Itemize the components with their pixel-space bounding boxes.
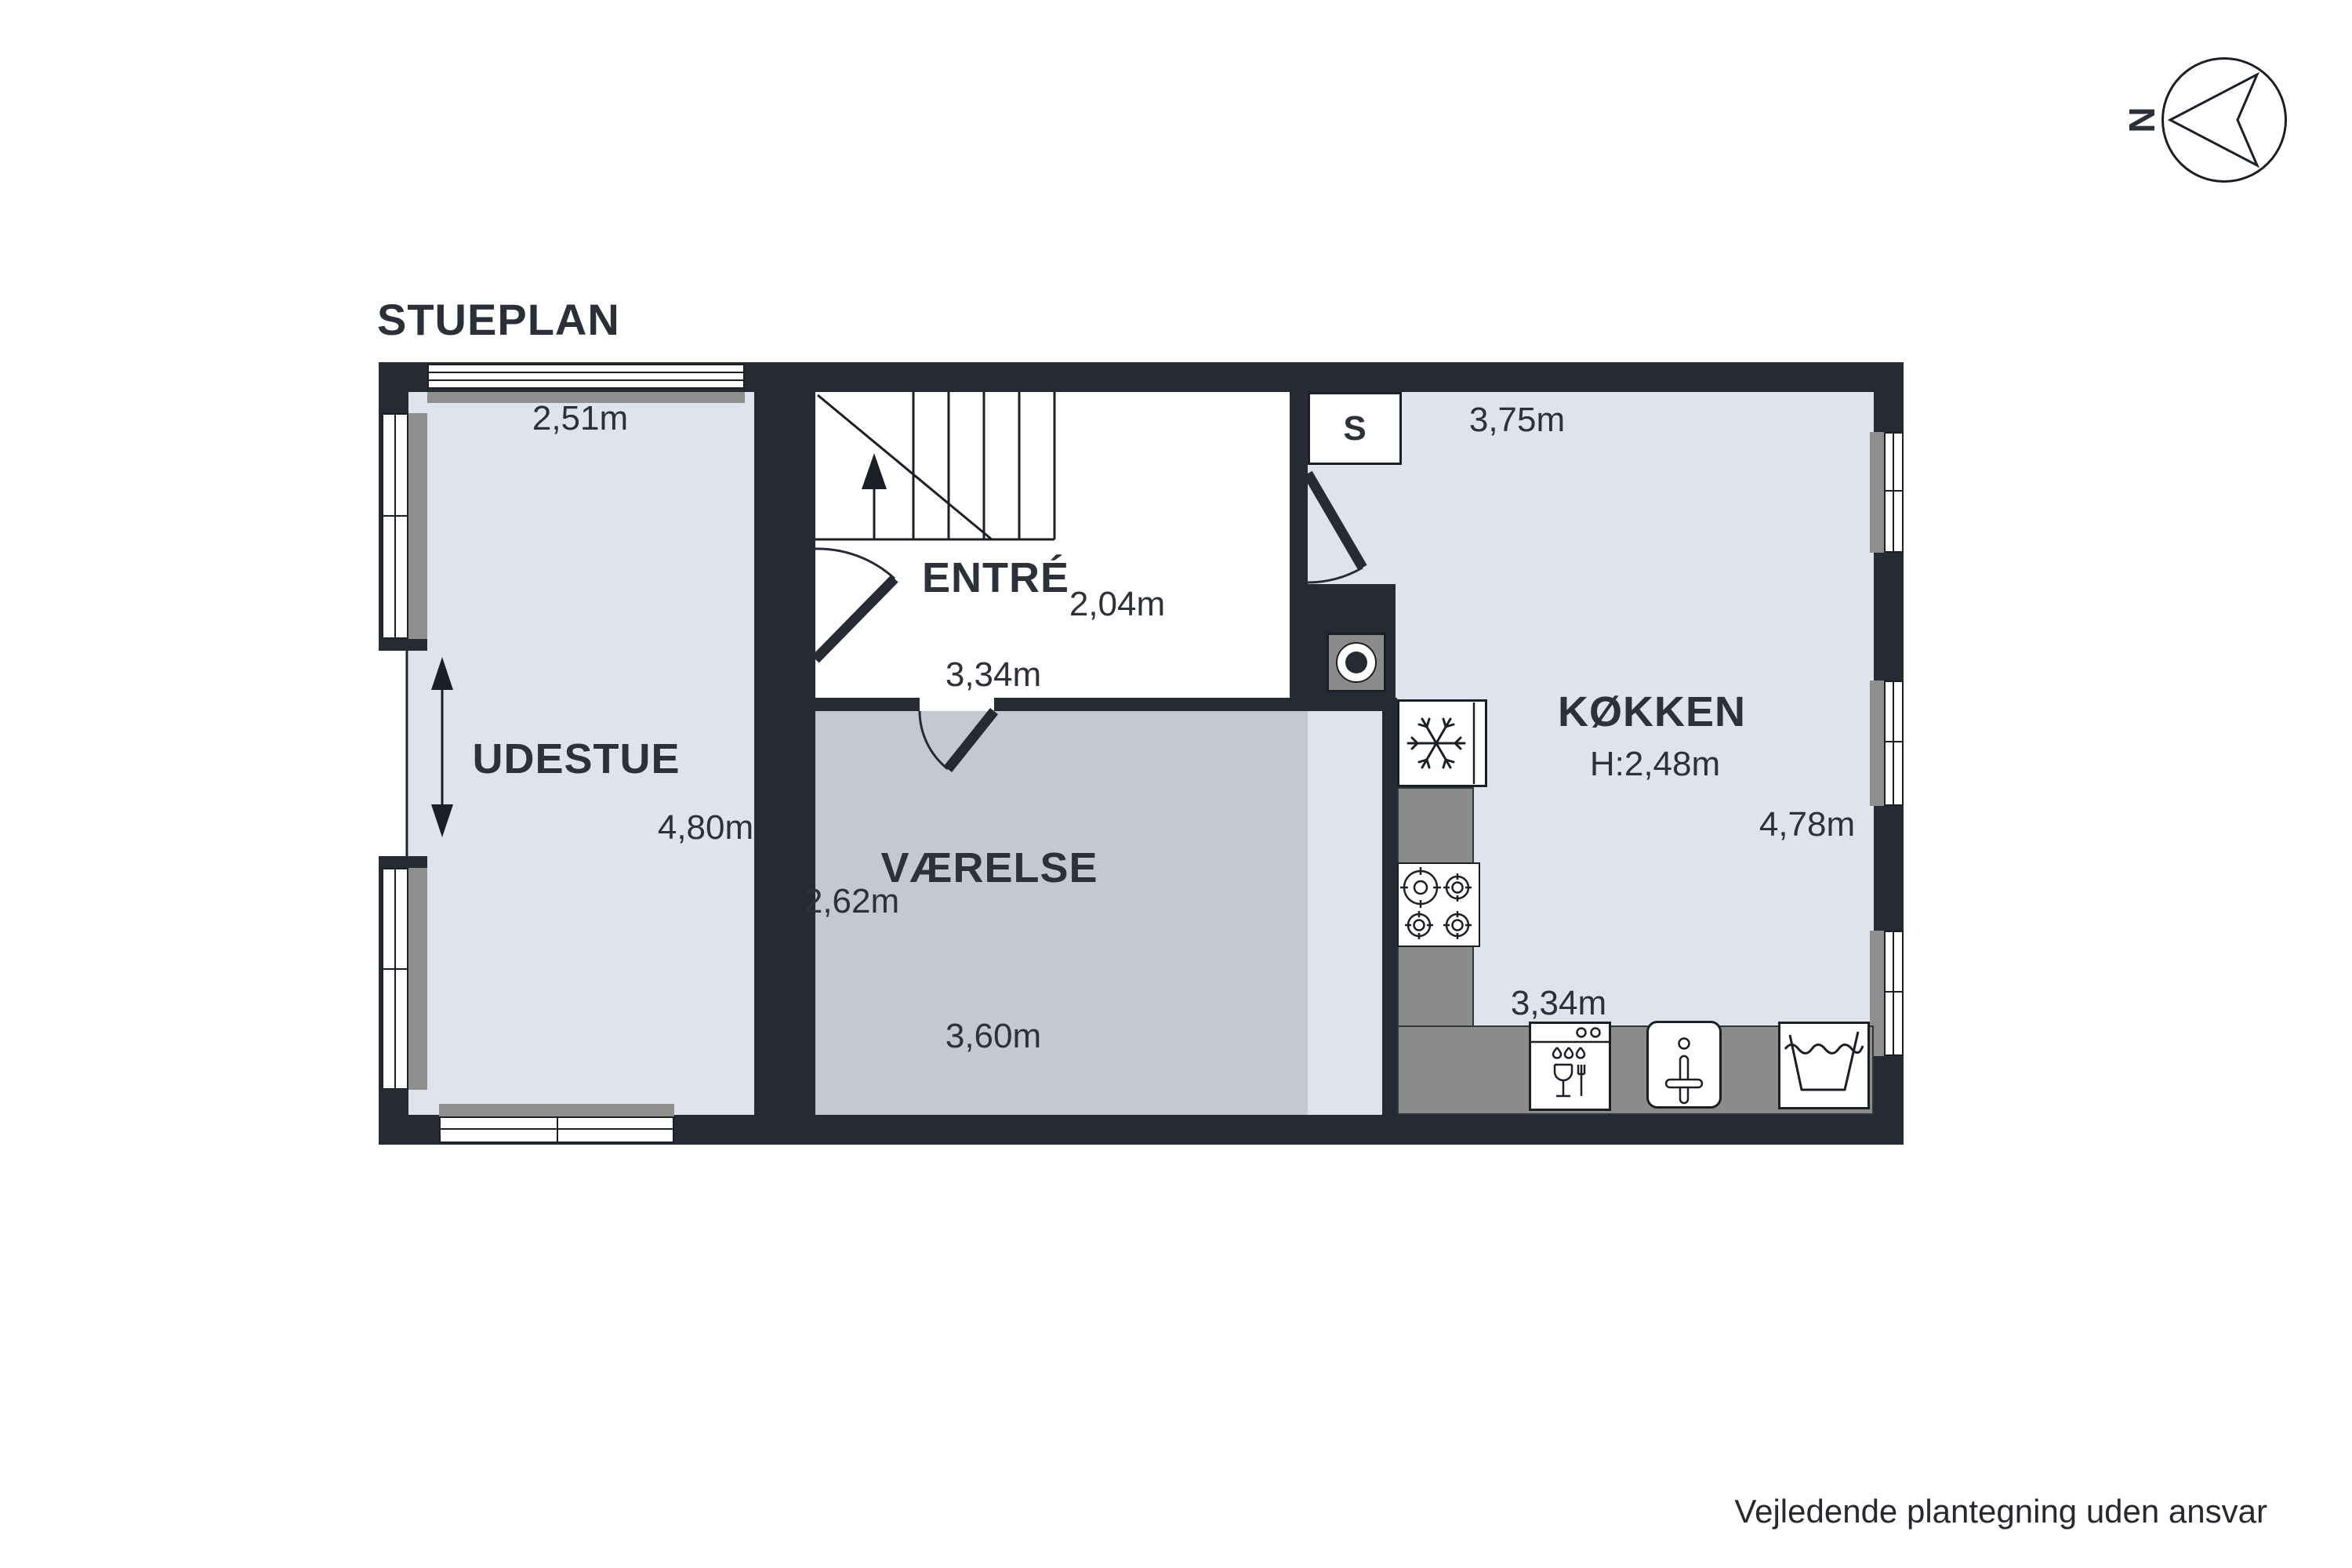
wall-entre-vaerelse-left — [815, 698, 920, 711]
wall-nub-lower — [379, 856, 427, 868]
dim-entre-bottom: 3,34m — [946, 655, 1041, 695]
dim-entre-right: 2,04m — [1069, 585, 1165, 624]
dishwasher-icon — [1529, 1022, 1611, 1111]
window-right-middle — [1884, 681, 1904, 806]
dim-vaerelse-left: 2,62m — [804, 882, 899, 921]
room-label-koekken: KØKKEN — [1558, 688, 1746, 736]
window-sill — [1870, 681, 1884, 806]
dim-koekken-bottom: 3,34m — [1511, 984, 1606, 1023]
facade-opening — [379, 651, 408, 856]
water-heater-icon — [1327, 633, 1386, 692]
closet-label: S — [1343, 409, 1366, 448]
dim-vaerelse-bottom: 3,60m — [946, 1017, 1041, 1056]
dim-koekken-ceiling: H:2,48m — [1590, 745, 1720, 784]
floorplan: S — [379, 362, 1904, 1145]
window-bottom-udestue — [439, 1116, 674, 1143]
compass-arrow-icon — [2164, 60, 2285, 180]
floorplan-page: STUEPLAN N — [0, 0, 2352, 1568]
dim-udestue-top: 2,51m — [532, 399, 628, 438]
room-label-entre: ENTRÉ — [922, 554, 1069, 602]
window-left-upper — [382, 413, 408, 639]
wall-vaerelse-koekken — [1382, 698, 1397, 1115]
window-right-top — [1884, 432, 1904, 553]
disclaimer-text: Vejledende plantegning uden ansvar — [1734, 1493, 2267, 1530]
page-title: STUEPLAN — [377, 294, 620, 345]
washbasin-icon — [1778, 1022, 1870, 1109]
window-sill — [1870, 432, 1884, 553]
window-sill — [408, 413, 427, 639]
wall-udestue-entre-upper — [784, 362, 815, 547]
dim-koekken-right: 4,78m — [1759, 805, 1855, 844]
freezer-icon — [1397, 699, 1487, 787]
dim-koekken-top: 3,75m — [1469, 401, 1565, 440]
window-sill — [408, 868, 427, 1090]
window-sill — [439, 1104, 674, 1116]
dim-udestue-right: 4,80m — [658, 808, 753, 848]
room-vaerelse-floor — [815, 711, 1382, 1115]
window-top-udestue — [427, 364, 745, 389]
room-label-vaerelse: VÆRELSE — [880, 844, 1098, 892]
sink-icon — [1646, 1021, 1722, 1109]
window-right-bottom — [1884, 931, 1904, 1056]
room-label-udestue: UDESTUE — [472, 735, 680, 783]
window-left-lower — [382, 868, 408, 1090]
compass-north-label: N — [2122, 96, 2162, 144]
wall-entre-koekken-upper — [1290, 362, 1308, 472]
wall-nub-upper — [379, 639, 427, 651]
compass-icon — [2161, 57, 2287, 183]
wall-entre-vaerelse-right — [994, 698, 1382, 711]
closet-box: S — [1308, 392, 1402, 465]
room-entre-floor — [815, 392, 1290, 711]
stove-icon — [1397, 862, 1480, 947]
